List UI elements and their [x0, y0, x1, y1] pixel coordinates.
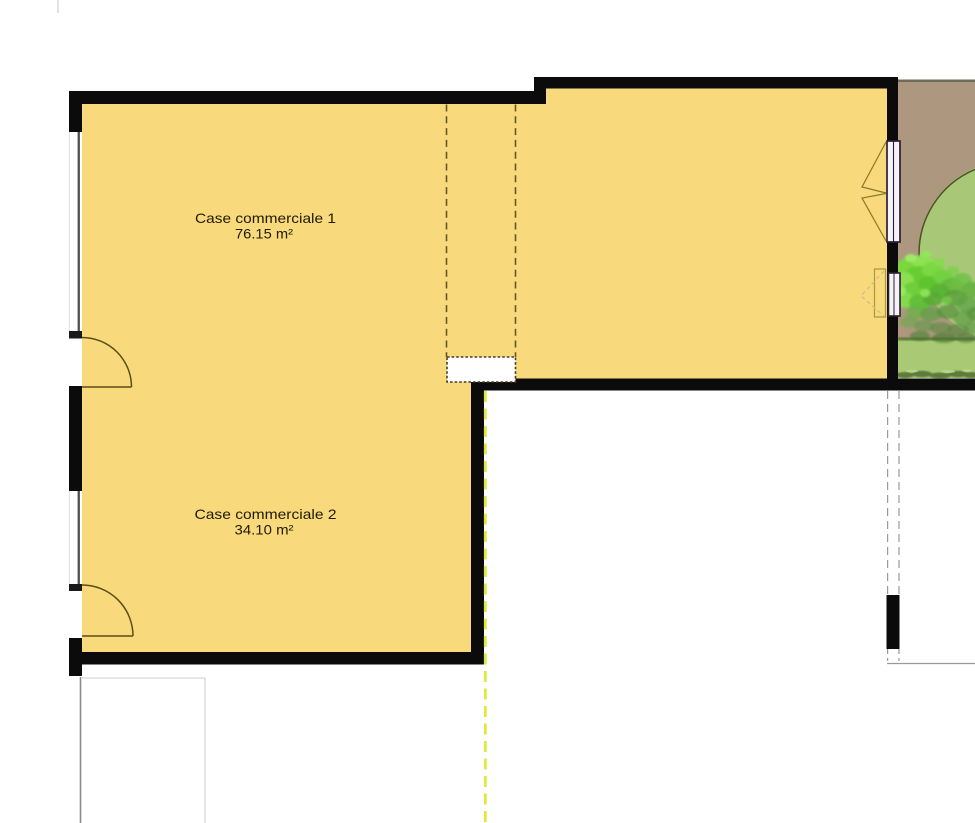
svg-text:76.15 m²: 76.15 m² [235, 226, 293, 242]
svg-text:Case commerciale 1: Case commerciale 1 [195, 210, 336, 226]
svg-text:34.10 m²: 34.10 m² [235, 522, 294, 538]
svg-text:Case commerciale 2: Case commerciale 2 [195, 506, 337, 522]
